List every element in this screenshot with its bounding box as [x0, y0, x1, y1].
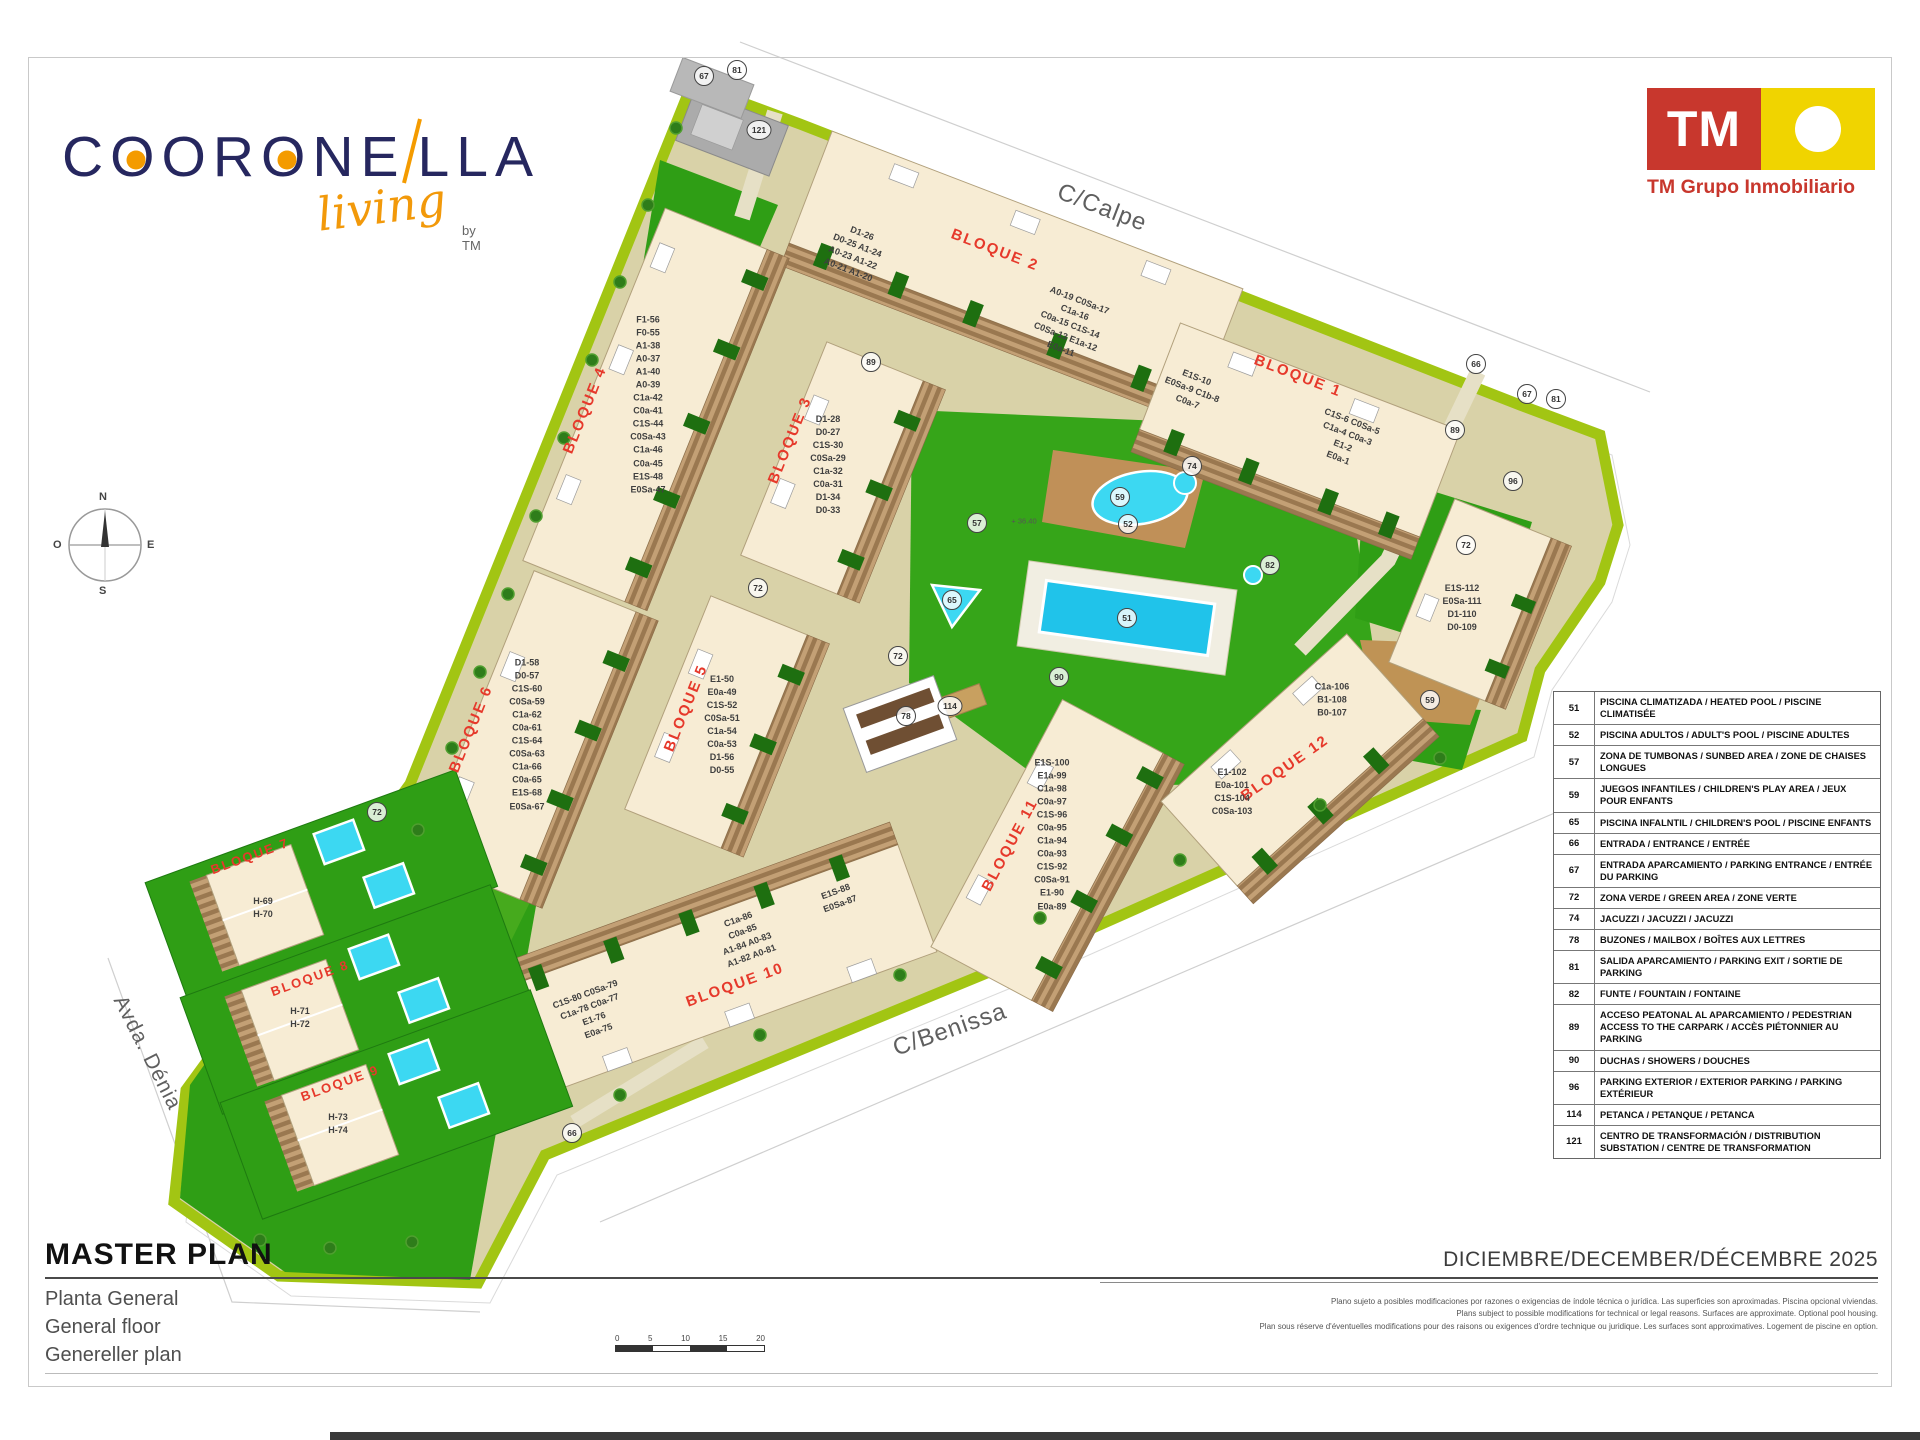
disclaimer-en: Plans subject to possible modifications … — [700, 1308, 1878, 1320]
legend-row: 114PETANCA / PETANQUE / PETANCA — [1554, 1105, 1880, 1126]
legend-table: 51PISCINA CLIMATIZADA / HEATED POOL / PI… — [1553, 691, 1881, 1159]
logo-by-tm: by TM — [462, 223, 482, 253]
ref-66-entrance: 66 — [1466, 354, 1486, 374]
ref-81-parking-exit: 81 — [1546, 389, 1566, 409]
legend-row: 57ZONA DE TUMBONAS / SUNBED AREA / ZONE … — [1554, 746, 1880, 779]
page-title: MASTER PLAN — [45, 1238, 273, 1272]
ref-72-green-area: 72 — [1456, 535, 1476, 555]
compass-rose: N E S O — [55, 495, 155, 595]
tm-company-name: TM Grupo Inmobiliario — [1647, 176, 1879, 199]
scale-bar-graphic — [615, 1345, 765, 1352]
legend-row: 82FUNTE / FOUNTAIN / FONTAINE — [1554, 984, 1880, 1005]
legend-row: 59JUEGOS INFANTILES / CHILDREN'S PLAY AR… — [1554, 779, 1880, 812]
ref-66-entrance: 66 — [562, 1123, 582, 1143]
ref-74-jacuzzi: 74 — [1182, 456, 1202, 476]
bloque-5-units: E1-50 E0a-49 C1S-52 C0Sa-51 C1a-54 C0a-5… — [704, 673, 740, 777]
subtitle-en: General floor — [45, 1316, 161, 1339]
compass-n: N — [99, 491, 107, 503]
compass-e: E — [147, 539, 154, 551]
bloque-8-units: H-71 H-72 — [290, 1005, 310, 1031]
bloque-4-units: F1-56 F0-55 A1-38 A0-37 A1-40 A0-39 C1a-… — [630, 314, 666, 497]
compass-o: O — [53, 539, 62, 551]
tm-red-square: TM — [1647, 88, 1761, 170]
ref-72-green-area: 72 — [748, 578, 768, 598]
scale-tick: 10 — [681, 1334, 690, 1343]
legend-row: 121CENTRO DE TRANSFORMACIÓN / DISTRIBUTI… — [1554, 1126, 1880, 1158]
bloque-3-units: D1-28 D0-27 C1S-30 C0Sa-29 C1a-32 C0a-31… — [810, 413, 846, 517]
compass-icon — [55, 495, 155, 595]
ref-81-parking-exit: 81 — [727, 60, 747, 80]
legend-row: 67ENTRADA APARCAMIENTO / PARKING ENTRANC… — [1554, 855, 1880, 888]
bloque-12-annex-units: E1S-112 E0Sa-111 D1-110 D0-109 — [1442, 582, 1481, 634]
legend-row: 81SALIDA APARCAMIENTO / PARKING EXIT / S… — [1554, 951, 1880, 984]
tm-grupo-logo: TM TM Grupo Inmobiliario — [1647, 88, 1879, 199]
disclaimer-text: Plano sujeto a posibles modificaciones p… — [700, 1296, 1878, 1333]
ref-114-petanca: 114 — [938, 696, 963, 716]
ref-89-pedestrian-access: 89 — [861, 352, 881, 372]
ref-78-mailbox: 78 — [896, 706, 916, 726]
ref-59-playground: 59 — [1110, 487, 1130, 507]
ref-67-parking-entrance: 67 — [1517, 384, 1537, 404]
ref-65-children-pool: 65 — [942, 590, 962, 610]
legend-row: 52PISCINA ADULTOS / ADULT'S POOL / PISCI… — [1554, 725, 1880, 746]
scale-bar: 0 5 10 15 20 — [615, 1334, 765, 1352]
legend-row: 65PISCINA INFALNTIL / CHILDREN'S POOL / … — [1554, 813, 1880, 834]
logo-o-dot-icon: O — [110, 124, 161, 190]
tm-circle-icon — [1795, 106, 1841, 152]
legend-row: 78BUZONES / MAILBOX / BOÎTES AUX LETTRES — [1554, 930, 1880, 951]
ref-52-adults-pool: 52 — [1118, 514, 1138, 534]
scale-tick: 15 — [719, 1334, 728, 1343]
ref-82-fountain: 82 — [1260, 555, 1280, 575]
bloque-12-units: E1-102 E0a-101 C1S-104 C0Sa-103 — [1212, 766, 1253, 818]
ref-90-showers: 90 — [1049, 667, 1069, 687]
compass-s: S — [99, 585, 106, 597]
ref-89-pedestrian-access: 89 — [1445, 420, 1465, 440]
ref-57-sunbed-area: 57 — [967, 513, 987, 533]
ref-67-parking-entrance: 67 — [694, 66, 714, 86]
disclaimer-fr: Plan sous réserve d'éventuelles modifica… — [700, 1321, 1878, 1333]
scale-tick: 20 — [756, 1334, 765, 1343]
bloque-9-units: H-73 H-74 — [328, 1111, 348, 1137]
bloque-12-units: C1a-106 B1-108 B0-107 — [1315, 680, 1350, 719]
legend-row: 51PISCINA CLIMATIZADA / HEATED POOL / PI… — [1554, 692, 1880, 725]
ref-72-green-area: 72 — [367, 802, 387, 822]
subtitle-es: Planta General — [45, 1288, 178, 1311]
screen-edge-strip — [330, 1432, 1920, 1440]
bloque-6-units: D1-58 D0-57 C1S-60 C0Sa-59 C1a-62 C0a-61… — [509, 657, 545, 814]
bloque-7-units: H-69 H-70 — [253, 895, 273, 921]
ref-51-heated-pool: 51 — [1117, 608, 1137, 628]
legend-row: 66ENTRADA / ENTRANCE / ENTRÉE — [1554, 834, 1880, 855]
scale-tick: 0 — [615, 1334, 619, 1343]
coronella-logo: COORONELLA living by TM — [62, 118, 482, 268]
divider — [45, 1277, 1878, 1279]
legend-row: 96PARKING EXTERIOR / EXTERIOR PARKING / … — [1554, 1072, 1880, 1105]
bloque-11-units: E1S-100 E1a-99 C1a-98 C0a-97 C1S-96 C0a-… — [1034, 757, 1070, 914]
legend-row: 72ZONA VERDE / GREEN AREA / ZONE VERTE — [1554, 888, 1880, 909]
ref-96-exterior-parking: 96 — [1503, 471, 1523, 491]
plan-date: DICIEMBRE/DECEMBER/DÉCEMBRE 2025 — [1100, 1248, 1878, 1272]
logo-o-dot-icon: O — [261, 124, 312, 190]
level-annotation: + 36.40 — [1011, 517, 1036, 526]
legend-row: 74JACUZZI / JACUZZI / JACUZZI — [1554, 909, 1880, 930]
legend-row: 90DUCHAS / SHOWERS / DOUCHES — [1554, 1051, 1880, 1072]
disclaimer-es: Plano sujeto a posibles modificaciones p… — [700, 1296, 1878, 1308]
legend-row: 89ACCESO PEATONAL AL APARCAMIENTO / PEDE… — [1554, 1005, 1880, 1050]
ref-59-playground: 59 — [1420, 690, 1440, 710]
tm-yellow-square — [1761, 88, 1875, 170]
divider — [45, 1373, 1878, 1374]
divider — [1100, 1282, 1878, 1283]
ref-121-transformer: 121 — [747, 120, 772, 140]
ref-72-green-area: 72 — [888, 646, 908, 666]
subtitle-de: Genereller plan — [45, 1344, 182, 1367]
scale-tick: 5 — [648, 1334, 652, 1343]
